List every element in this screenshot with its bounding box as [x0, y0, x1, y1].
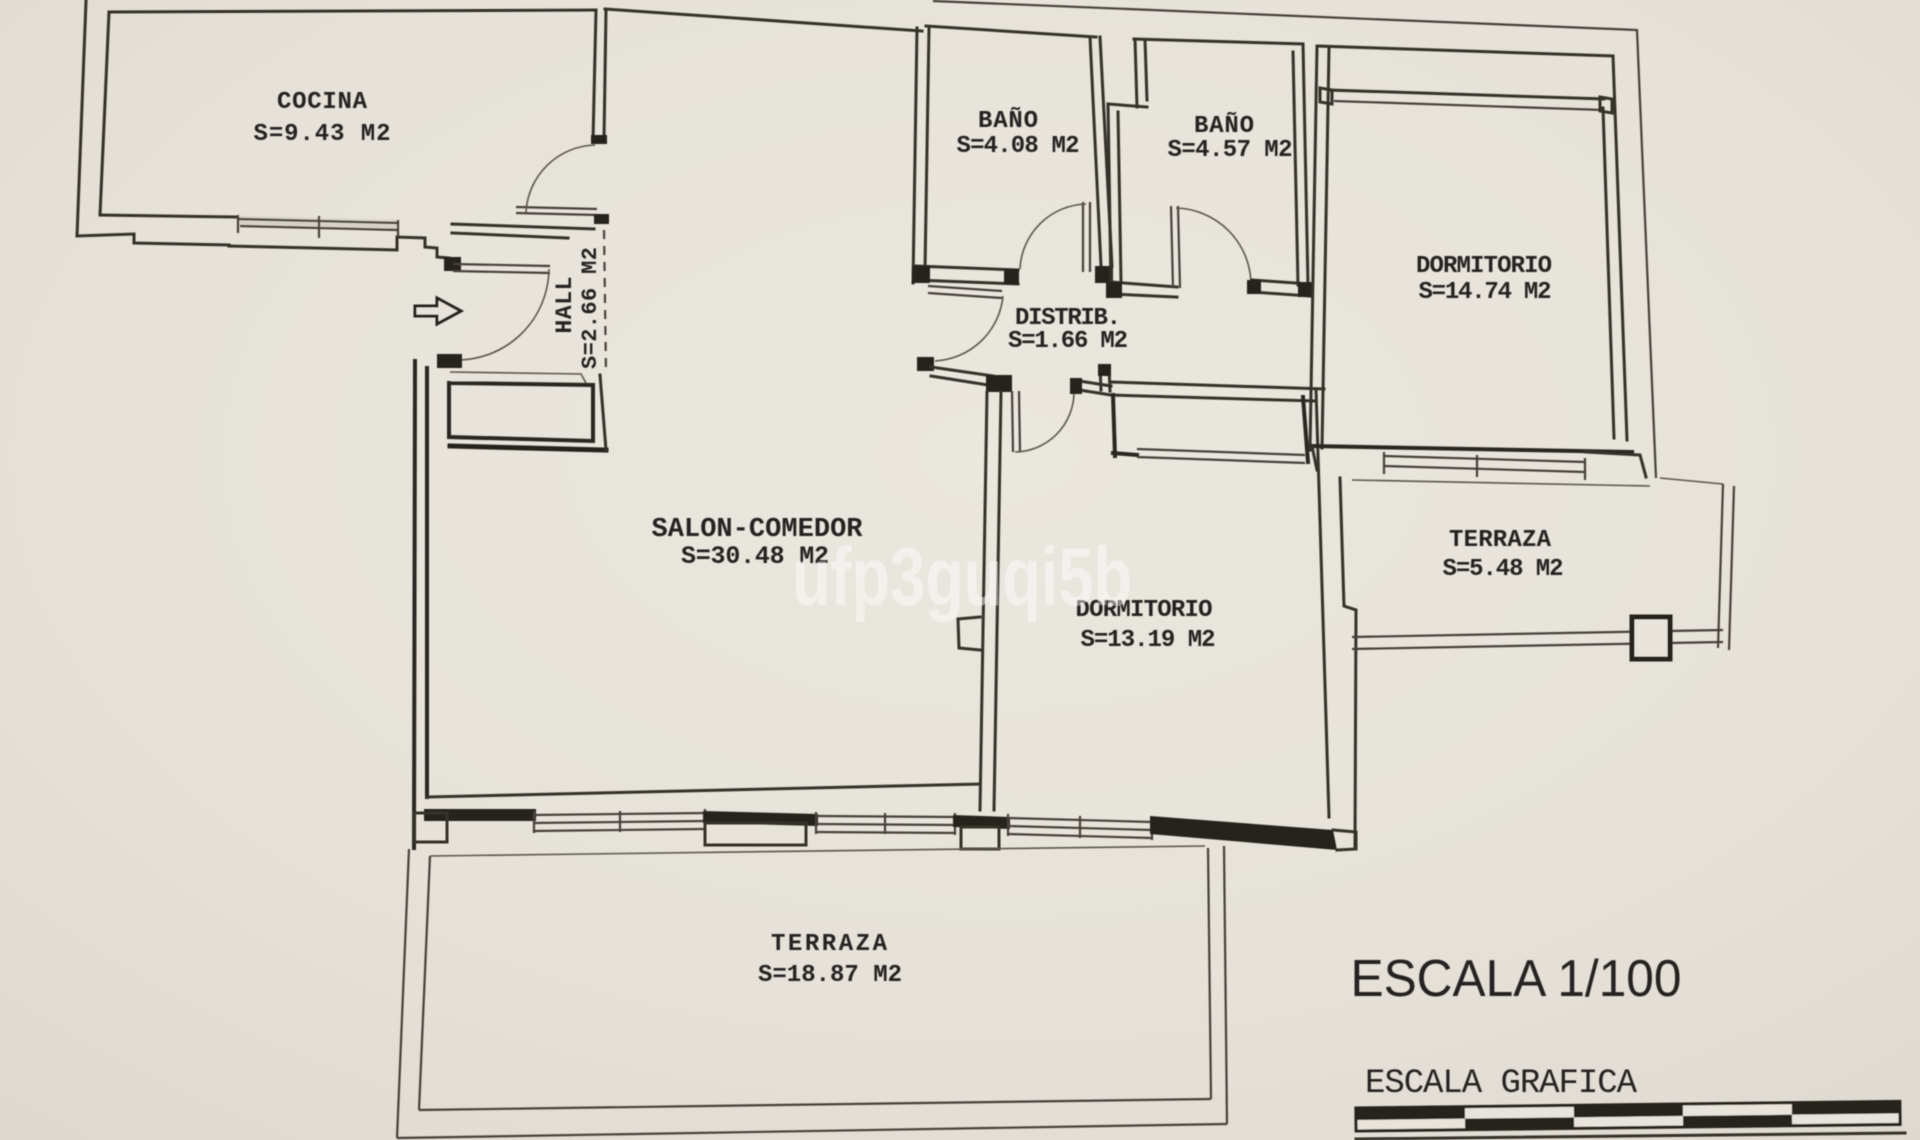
svg-text:TERRAZA: TERRAZA: [1449, 527, 1552, 554]
svg-text:DORMITORIO: DORMITORIO: [1416, 253, 1552, 280]
svg-text:S=1.66 M2: S=1.66 M2: [1008, 328, 1128, 355]
svg-text:S=9.43 M2: S=9.43 M2: [254, 121, 391, 148]
svg-text:ESCALA 1/100: ESCALA 1/100: [1351, 950, 1682, 1008]
svg-text:BAÑO: BAÑO: [1194, 112, 1254, 140]
svg-text:COCINA: COCINA: [277, 89, 368, 116]
svg-text:S=4.57 M2: S=4.57 M2: [1168, 137, 1293, 164]
svg-text:S=5.48 M2: S=5.48 M2: [1443, 556, 1564, 583]
svg-text:S=13.19 M2: S=13.19 M2: [1081, 627, 1216, 654]
svg-text:S=14.74 M2: S=14.74 M2: [1419, 279, 1552, 306]
svg-text:HALL: HALL: [552, 277, 578, 334]
svg-text:BAÑO: BAÑO: [978, 107, 1038, 135]
svg-text:S=18.87 M2: S=18.87 M2: [758, 962, 902, 989]
svg-text:S=2.66 M2: S=2.66 M2: [578, 247, 603, 369]
svg-text:S=4.08 M2: S=4.08 M2: [957, 133, 1080, 160]
svg-text:ESCALA GRAFICA: ESCALA GRAFICA: [1365, 1065, 1638, 1103]
svg-text:ufp3guqi5b: ufp3guqi5b: [792, 530, 1132, 623]
